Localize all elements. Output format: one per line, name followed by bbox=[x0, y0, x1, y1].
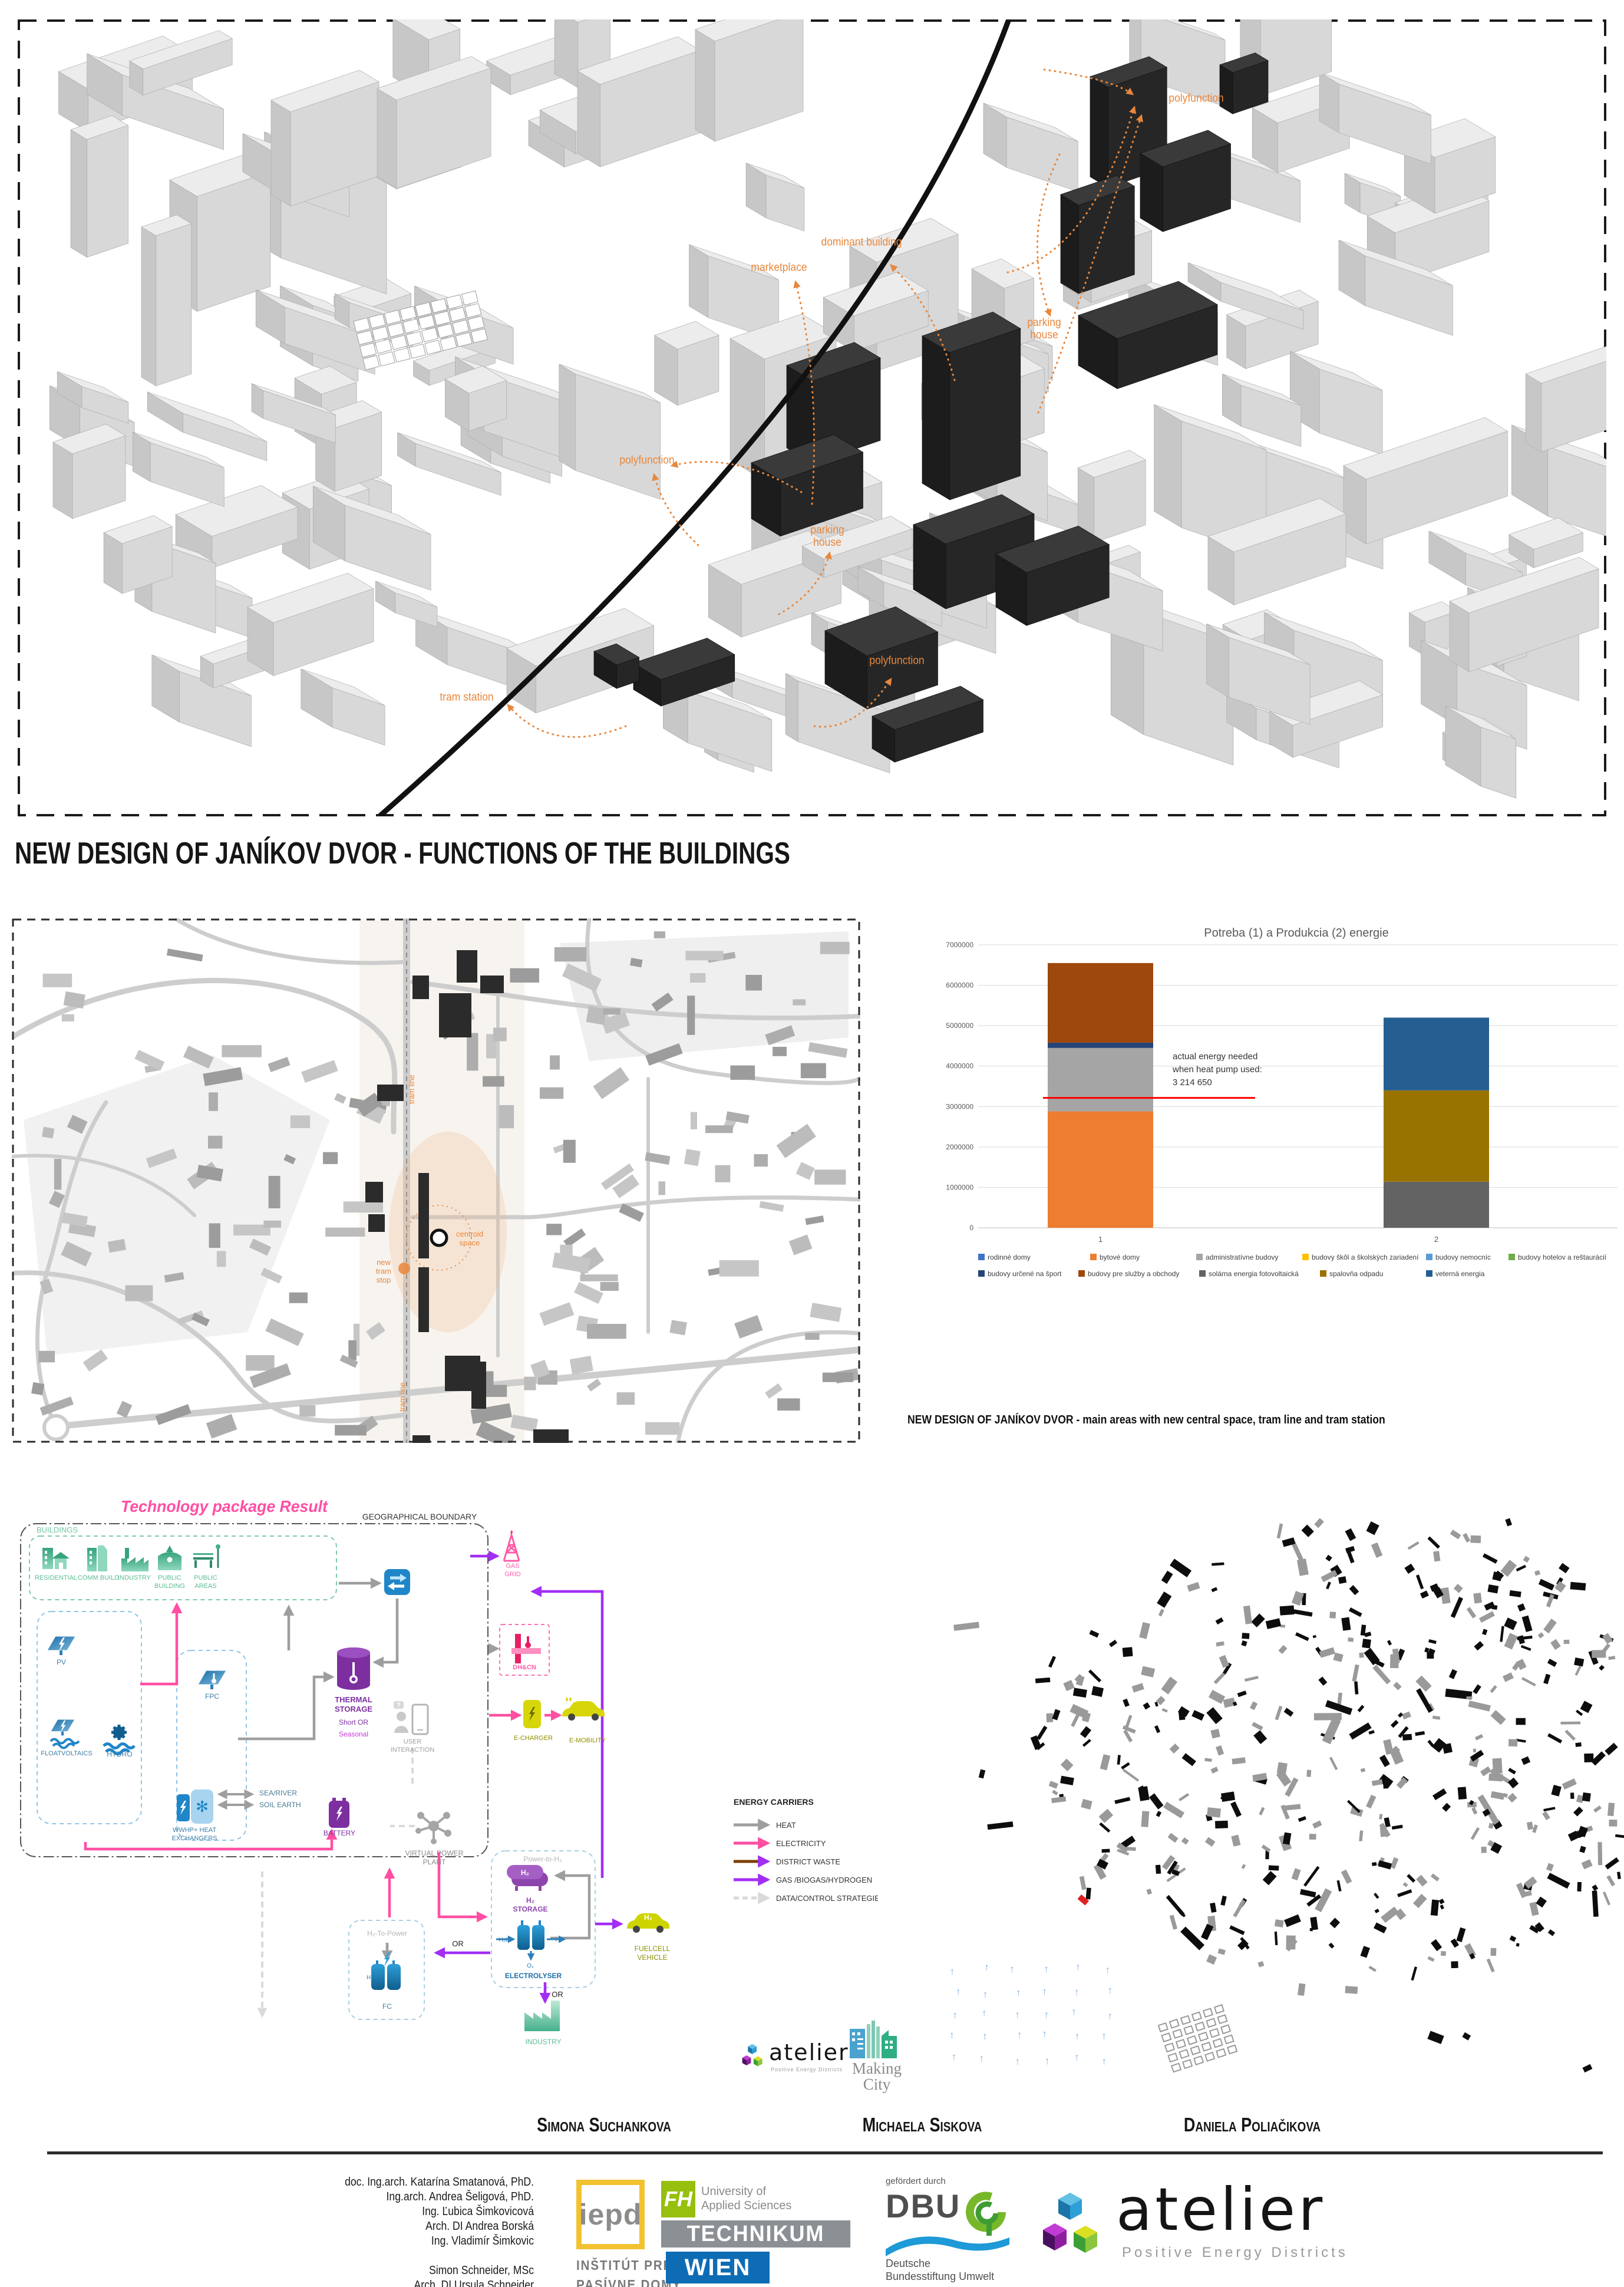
residential-icon bbox=[42, 1548, 70, 1569]
bar-segment bbox=[1384, 1182, 1489, 1228]
3d-model-drawing bbox=[18, 19, 1606, 816]
dhcn-icon bbox=[511, 1634, 541, 1663]
virtual-power-plant-icon bbox=[415, 1812, 451, 1844]
energy-carrier-label: DISTRICT WASTE bbox=[776, 1857, 840, 1866]
fh-uni-line2: Applied Sciences bbox=[701, 2199, 791, 2213]
fh-box: FH bbox=[661, 2181, 695, 2217]
tech-label: SEA/RIVER bbox=[259, 1789, 297, 1797]
tech-label: PUBLICAREAS bbox=[194, 1574, 217, 1590]
svg-text:↑: ↑ bbox=[1015, 2009, 1020, 2020]
gas-grid-icon bbox=[504, 1530, 519, 1561]
annotation-text: when heat pump used: bbox=[1172, 1065, 1262, 1075]
svg-text:↑: ↑ bbox=[1074, 1986, 1080, 1998]
atelier-name: atelier bbox=[1116, 2175, 1325, 2244]
svg-text:↑: ↑ bbox=[1101, 2055, 1107, 2067]
legend-label: rodinné domy bbox=[988, 1253, 1031, 1261]
y-tick-label: 5000000 bbox=[946, 1021, 973, 1030]
battery-icon bbox=[329, 1798, 349, 1828]
bar-segment bbox=[1048, 1043, 1153, 1048]
fh-technikum-wien-logo: FH University of Applied Sciences TECHNI… bbox=[661, 2181, 873, 2287]
legend-swatch bbox=[1078, 1270, 1085, 1277]
h2-storage-icon: H₂ bbox=[507, 1865, 548, 1891]
making-city-logo: Making City bbox=[841, 2021, 912, 2103]
svg-text:H₂: H₂ bbox=[521, 1869, 529, 1877]
energy-carrier-label: GAS /BIOGAS/HYDROGEN bbox=[776, 1876, 872, 1884]
svg-text:↑: ↑ bbox=[1101, 2031, 1107, 2042]
legend-label: budovy škôl a školských zariadení bbox=[1312, 1253, 1419, 1261]
tech-label: OR bbox=[452, 1939, 464, 1948]
tech-label: INDUSTRY bbox=[118, 1574, 151, 1581]
svg-text:✻: ✻ bbox=[196, 1798, 209, 1815]
energy-carrier-label: HEAT bbox=[776, 1821, 796, 1830]
flow-arrow bbox=[375, 1599, 397, 1662]
tech-label: FUELCELLVEHICLE bbox=[635, 1945, 671, 1962]
model-annotation: polyfunction bbox=[619, 454, 674, 466]
credit-line: Simon Schneider, MSc bbox=[287, 2263, 534, 2278]
team-member-name: Simona Suchankova bbox=[537, 2114, 671, 2136]
boundary-label: GEOGRAPHICAL BOUNDARY bbox=[362, 1512, 477, 1521]
legend-label: budovy hotelov a reštaurácií bbox=[1518, 1253, 1607, 1261]
3d-model-panel: polyfunctiondominant buildingmarketplace… bbox=[18, 19, 1606, 816]
atelier-name-small: atelier bbox=[769, 2039, 849, 2065]
svg-text:↑: ↑ bbox=[979, 2052, 985, 2064]
dbu-wave-icon bbox=[886, 2233, 1009, 2256]
model-annotation: polyfunction bbox=[869, 654, 924, 667]
team-member-name: Daniela Poliačikova bbox=[1184, 2114, 1321, 2136]
dbu-line1: Deutsche bbox=[886, 2258, 930, 2270]
y-tick-label: 7000000 bbox=[946, 941, 973, 949]
y-tick-label: 0 bbox=[969, 1224, 973, 1232]
tech-label: HYDRO bbox=[107, 1750, 132, 1758]
floatvoltaics-icon bbox=[51, 1719, 79, 1748]
flow-arrow bbox=[439, 1852, 486, 1917]
svg-text:↑: ↑ bbox=[1107, 2010, 1113, 2021]
svg-text:↑: ↑ bbox=[982, 2008, 987, 2019]
map-label: newtramstop bbox=[376, 1258, 391, 1284]
team-member-name: Michaela Siskova bbox=[863, 2114, 982, 2136]
tech-label: Power-to-H₂ bbox=[523, 1855, 562, 1863]
tech-label: H₂STORAGE bbox=[513, 1896, 547, 1913]
model-annotation: dominant building bbox=[821, 236, 902, 248]
x-category-label: 1 bbox=[1098, 1235, 1103, 1244]
industry-icon bbox=[121, 1548, 148, 1571]
credits-block: doc. Ing.arch. Katarína Smatanová, PhD.I… bbox=[287, 2175, 534, 2287]
flow-arrow bbox=[140, 1604, 177, 1684]
credit-line: Arch. DI Ursula Schneider bbox=[287, 2278, 534, 2287]
tech-label: Seasonal bbox=[339, 1730, 368, 1738]
tech-label: GASGRID bbox=[504, 1563, 521, 1578]
legend-label: solárna energia fotovoltaická bbox=[1209, 1270, 1299, 1278]
credit-line: Ing.arch. Andrea Šeligová, PhD. bbox=[287, 2190, 534, 2204]
svg-text:↑: ↑ bbox=[983, 1989, 988, 2000]
electrolyser-icon bbox=[517, 1920, 544, 1950]
city-blocks bbox=[49, 19, 1606, 798]
svg-text:↑: ↑ bbox=[952, 2009, 958, 2021]
svg-text:↑: ↑ bbox=[1044, 1963, 1049, 1975]
fh-uni-line1: University of bbox=[701, 2184, 791, 2199]
credit-line bbox=[287, 2249, 534, 2263]
model-annotation: marketplace bbox=[751, 261, 807, 273]
legend-swatch bbox=[1426, 1254, 1432, 1260]
e-mobility-car-icon bbox=[562, 1698, 605, 1721]
figure-ground-map: ↑↑↑↑↑↑↑↑↑↑↑↑↑↑↑↑↑↑↑↑↑↑↑↑↑↑↑↑↑↑ bbox=[931, 1515, 1624, 2075]
wwhp-heat-exchanger-icon: ✻ bbox=[177, 1790, 213, 1824]
legend-label: veterná energia bbox=[1435, 1270, 1485, 1278]
svg-text:H₂: H₂ bbox=[367, 1975, 373, 1981]
energy-carrier-label: ELECTRICITY bbox=[776, 1839, 826, 1848]
bar-segment bbox=[1048, 1112, 1153, 1228]
tech-icons: ✻ ? H₂ H₂ H₂ bbox=[42, 1530, 669, 2031]
map-label: tram line bbox=[407, 1075, 416, 1104]
bar-segment bbox=[1048, 963, 1153, 1043]
tech-label: WWHP+ HEATEXCHANGERS bbox=[171, 1827, 217, 1842]
energy-chart-svg: Potreba (1) a Produkcia (2) energie01000… bbox=[919, 922, 1624, 1306]
svg-text:↑: ↑ bbox=[1017, 2029, 1022, 2041]
credit-line: Ing. Ľubica Šimkovicová bbox=[287, 2204, 534, 2219]
tech-label: E-CHARGER bbox=[514, 1735, 553, 1742]
legend-label: budovy nemocníc bbox=[1435, 1253, 1491, 1261]
legend-swatch bbox=[978, 1254, 985, 1260]
energy-carriers-title: ENERGY CARRIERS bbox=[734, 1797, 814, 1807]
tech-label: SOIL EARTH bbox=[259, 1801, 301, 1809]
legend-swatch bbox=[1196, 1254, 1203, 1260]
y-tick-label: 3000000 bbox=[946, 1102, 973, 1110]
svg-text:↑: ↑ bbox=[1042, 2028, 1047, 2039]
tech-label: FPC bbox=[205, 1692, 219, 1701]
tech-label: RESIDENTIAL bbox=[35, 1574, 77, 1581]
iepd-logo-box: iepd bbox=[576, 2180, 645, 2249]
y-tick-label: 6000000 bbox=[946, 981, 973, 990]
tech-label: O₂ bbox=[527, 1963, 534, 1969]
public-areas-icon bbox=[193, 1544, 220, 1568]
legend-swatch bbox=[1199, 1270, 1206, 1277]
tech-diagram-svg: GEOGRAPHICAL BOUNDARYBUILDINGS ✻ bbox=[18, 1497, 878, 2104]
tech-label: H₂O bbox=[499, 1937, 510, 1943]
annotation-text: 3 214 650 bbox=[1173, 1077, 1212, 1088]
tech-label: COMM BUILD bbox=[78, 1574, 119, 1581]
map-drawing: tram linecentroidspacenewtramstoptram li… bbox=[12, 918, 860, 1443]
comm-build-icon bbox=[87, 1545, 107, 1571]
svg-text:↑: ↑ bbox=[1045, 2055, 1050, 2067]
legend-swatch bbox=[1426, 1270, 1432, 1277]
tech-label: ELECTROLYSER bbox=[505, 1972, 562, 1980]
tech-label: E-MOBILITY bbox=[569, 1737, 606, 1744]
exchange-icon bbox=[384, 1569, 410, 1595]
tech-label: FC bbox=[382, 2002, 392, 2011]
svg-text:↑: ↑ bbox=[1016, 1987, 1021, 1998]
atelier-logo: atelier Positive Energy Districts bbox=[1032, 2182, 1398, 2282]
legend-swatch bbox=[978, 1270, 985, 1277]
fpc-icon bbox=[198, 1670, 226, 1689]
buildings-group-label: BUILDINGS bbox=[37, 1525, 78, 1534]
svg-text:↑: ↑ bbox=[1108, 1985, 1113, 1996]
map-caption: NEW DESIGN OF JANÍKOV DVOR - main areas … bbox=[907, 1413, 1385, 1427]
legend-label: administratívne budovy bbox=[1206, 1253, 1278, 1261]
y-tick-label: 2000000 bbox=[946, 1143, 973, 1151]
svg-text:↑: ↑ bbox=[950, 1966, 955, 1977]
svg-text:↑: ↑ bbox=[1105, 1965, 1111, 1976]
iepd-line1: INŠTITÚT PRE bbox=[576, 2258, 672, 2273]
svg-text:H₂: H₂ bbox=[644, 1913, 652, 1922]
atelier-cubes-icon bbox=[1032, 2187, 1109, 2269]
bar-segment bbox=[1048, 1048, 1153, 1112]
dbu-line2: Bundesstiftung Umwelt bbox=[886, 2270, 994, 2283]
bar-segment bbox=[1384, 1017, 1489, 1090]
svg-text:↑: ↑ bbox=[1074, 2051, 1080, 2062]
tech-label: Short OR bbox=[339, 1718, 368, 1726]
grid-houses bbox=[1158, 2005, 1237, 2072]
thermal-storage-icon bbox=[337, 1647, 370, 1690]
fuelcell-vehicle-icon: H₂ bbox=[627, 1913, 669, 1933]
dbu-funded-label: gefördert durch bbox=[886, 2176, 1045, 2186]
wind-arrows: ↑↑↑↑↑↑↑↑↑↑↑↑↑↑↑↑↑↑↑↑↑↑↑↑↑↑↑↑↑↑ bbox=[949, 1961, 1113, 2067]
model-annotation: parking house bbox=[1027, 317, 1061, 341]
flow-arrow bbox=[238, 1677, 332, 1739]
iepd-acronym: iepd bbox=[579, 2197, 642, 2232]
map-label: centroidspace bbox=[456, 1230, 483, 1247]
tech-label: H₂-To-Power bbox=[367, 1929, 407, 1937]
svg-text:↑: ↑ bbox=[1044, 2009, 1049, 2021]
tech-label: PV bbox=[57, 1658, 66, 1666]
svg-text:↑: ↑ bbox=[1015, 2055, 1021, 2067]
tech-diagram-title: Technology package Result bbox=[121, 1497, 328, 1516]
tech-label: BATTERY bbox=[324, 1829, 355, 1837]
credit-line: Arch. DI Andrea Borská bbox=[287, 2219, 534, 2234]
map-label: tram line bbox=[398, 1382, 407, 1412]
model-annotation: parking house bbox=[810, 524, 844, 549]
svg-text:↑: ↑ bbox=[949, 2029, 955, 2041]
legend-swatch bbox=[1320, 1270, 1326, 1277]
legend-label: budovy určené na šport bbox=[988, 1270, 1062, 1278]
poster-page: polyfunctiondominant buildingmarketplace… bbox=[0, 0, 1624, 2287]
svg-text:↑: ↑ bbox=[1042, 1986, 1047, 1997]
fh-wien: WIEN bbox=[666, 2252, 770, 2283]
x-category-label: 2 bbox=[1434, 1235, 1438, 1244]
legend-swatch bbox=[1090, 1254, 1097, 1260]
flow-arrow bbox=[550, 1876, 589, 1938]
legend-label: bytové domy bbox=[1100, 1253, 1140, 1261]
industry-green-icon bbox=[524, 2001, 560, 2031]
energy-carrier-label: DATA/CONTROL STRATEGIES bbox=[776, 1894, 878, 1903]
tech-label: USERINTERACTION bbox=[391, 1738, 435, 1754]
figure-ground-buildings bbox=[953, 1518, 1624, 2072]
fuel-cell-icon: H₂ bbox=[367, 1952, 401, 1990]
tech-label: DH&CN bbox=[513, 1664, 536, 1671]
credit-line: Ing. Vladimír Šimkovic bbox=[287, 2234, 534, 2249]
svg-text:↑: ↑ bbox=[1071, 2006, 1077, 2018]
bar-segment bbox=[1384, 1090, 1489, 1182]
technology-diagram: Technology package Result GEOGRAPHICAL B… bbox=[18, 1497, 878, 2104]
svg-text:?: ? bbox=[397, 1702, 401, 1709]
y-tick-label: 1000000 bbox=[946, 1183, 973, 1191]
credit-line: doc. Ing.arch. Katarína Smatanová, PhD. bbox=[287, 2175, 534, 2190]
public-building-icon bbox=[158, 1545, 181, 1570]
legend-swatch bbox=[1302, 1254, 1309, 1260]
model-annotation: tram station bbox=[440, 691, 493, 703]
dbu-logo: gefördert durch DBU Deutsche Bundesstift… bbox=[886, 2176, 1045, 2286]
making-city-icon bbox=[850, 2021, 897, 2058]
annotation-text: actual energy needed bbox=[1173, 1052, 1257, 1062]
svg-text:↑: ↑ bbox=[1075, 1961, 1081, 1972]
svg-text:↑: ↑ bbox=[982, 2031, 988, 2042]
iepd-line2: PASÍVNE DOMY bbox=[576, 2277, 672, 2287]
svg-text:↑: ↑ bbox=[1009, 1963, 1015, 1975]
energy-chart: Potreba (1) a Produkcia (2) energie01000… bbox=[919, 922, 1624, 1306]
y-tick-label: 4000000 bbox=[946, 1062, 973, 1070]
model-annotation: polyfunction bbox=[1169, 92, 1223, 104]
legend-swatch bbox=[1509, 1254, 1515, 1260]
svg-text:↑: ↑ bbox=[952, 2051, 957, 2062]
footer-divider bbox=[47, 2151, 1603, 2154]
tech-label: THERMALSTORAGE bbox=[335, 1695, 372, 1713]
tech-label: PUBLICBUILDING bbox=[154, 1574, 185, 1590]
user-interaction-icon: ? bbox=[394, 1701, 428, 1734]
figure-ground-svg: ↑↑↑↑↑↑↑↑↑↑↑↑↑↑↑↑↑↑↑↑↑↑↑↑↑↑↑↑↑↑ bbox=[931, 1515, 1624, 2075]
team-names: Simona SuchankovaMichaela SiskovaDaniela… bbox=[0, 2114, 1624, 2149]
svg-text:↑: ↑ bbox=[956, 1986, 961, 1998]
pv-icon bbox=[47, 1636, 75, 1655]
e-charger-icon bbox=[523, 1700, 541, 1728]
page-title: NEW DESIGN OF JANÍKOV DVOR - FUNCTIONS O… bbox=[15, 836, 790, 871]
dbu-abbr: DBU bbox=[886, 2190, 960, 2223]
chart-title: Potreba (1) a Produkcia (2) energie bbox=[1204, 927, 1389, 940]
tech-label: VIRTUAL POWERPLANT bbox=[405, 1849, 464, 1866]
map-panel: tram linecentroidspacenewtramstoptram li… bbox=[12, 918, 860, 1443]
legend-label: spalovňa odpadu bbox=[1329, 1270, 1383, 1278]
making-city-line2: City bbox=[841, 2075, 912, 2094]
atelier-cubes-icon-small bbox=[738, 2042, 767, 2072]
tech-label: INDUSTRY bbox=[525, 2038, 561, 2046]
atelier-subtitle: Positive Energy Districts bbox=[1122, 2245, 1348, 2261]
atelier-subtitle-small: Positive Energy Districts bbox=[771, 2067, 843, 2072]
svg-text:↑: ↑ bbox=[984, 1962, 989, 1973]
tech-label: FLOATVOLTAICS bbox=[41, 1750, 92, 1757]
fh-technikum: TECHNIKUM bbox=[661, 2220, 850, 2248]
tech-label: OR bbox=[552, 1990, 563, 1999]
svg-text:↑: ↑ bbox=[1075, 2031, 1080, 2042]
tech-label: H₂ bbox=[555, 1937, 562, 1943]
legend-label: budovy pre služby a obchody bbox=[1088, 1270, 1179, 1278]
